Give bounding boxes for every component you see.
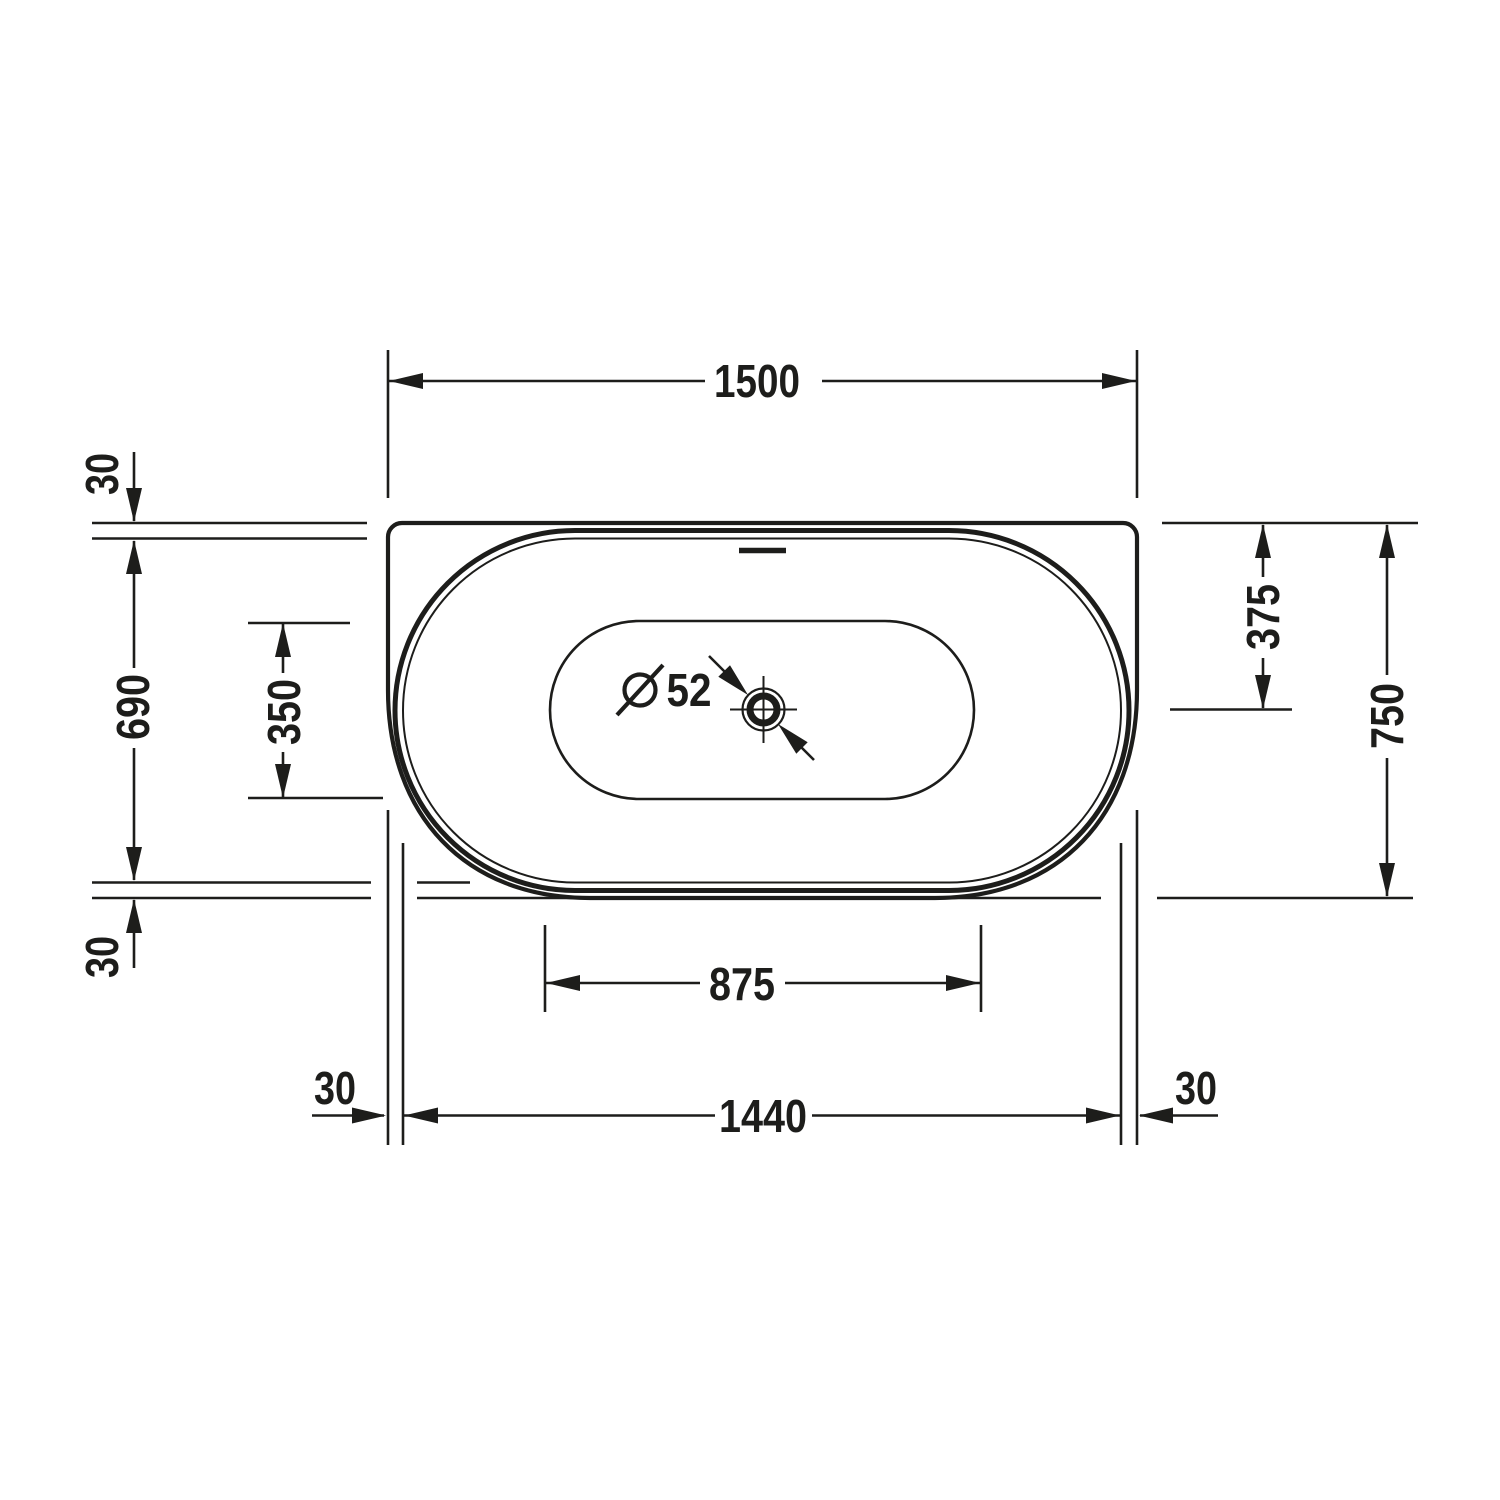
dimension-back-to-center: 375 [1237, 524, 1289, 709]
arrowhead-right [1102, 373, 1136, 389]
arrowhead-left [1139, 1108, 1173, 1124]
dimension-rim-offset-left-bottom: 30 [312, 1062, 386, 1124]
bathtub-technical-drawing: 52 1500 30 [0, 0, 1500, 1500]
drain-diameter-label: 52 [667, 664, 712, 716]
arrowhead-right [352, 1108, 386, 1124]
arrowhead-down [1255, 675, 1271, 709]
dimension-inner-depth: 690 [107, 540, 159, 881]
dim-label-inner-depth: 690 [107, 674, 159, 740]
arrowhead-right [946, 975, 980, 991]
dim-label-back-to-center: 375 [1237, 584, 1289, 650]
dim-label-inner-width: 1440 [719, 1090, 807, 1142]
dimension-overall-width: 1500 [389, 355, 1136, 407]
arrowhead-up [275, 623, 291, 657]
dim-label-overall-depth: 750 [1361, 683, 1413, 749]
arrowhead-left [546, 975, 580, 991]
arrowhead-up [1255, 524, 1271, 558]
drain-leader-upper [709, 656, 726, 673]
dimension-rim-offset-bottom: 30 [76, 899, 142, 978]
extension-lines [92, 350, 1418, 1145]
dimension-floor-depth: 350 [258, 623, 310, 798]
arrowhead-down [126, 488, 142, 522]
dim-label-floor-depth: 350 [258, 679, 310, 745]
bathtub-plan-view: 52 [388, 523, 1137, 898]
dimension-rim-offset-top: 30 [76, 452, 142, 522]
arrowhead-up [126, 540, 142, 574]
dim-label-overall-width: 1500 [714, 355, 800, 407]
drain-leader-lower [800, 746, 814, 760]
dimension-overall-depth: 750 [1361, 524, 1413, 897]
diameter-symbol-icon [617, 665, 663, 715]
arrowhead-left [389, 373, 423, 389]
arrowhead-down [275, 764, 291, 798]
arrowhead-up [1379, 524, 1395, 558]
drain: 52 [617, 656, 814, 760]
arrowhead-down [1379, 863, 1395, 897]
dim-label-rim-offset-bottom: 30 [76, 936, 128, 978]
dim-label-rim-offset-top: 30 [76, 453, 128, 495]
arrowhead-left [404, 1108, 438, 1124]
dim-label-rim-offset-right-bottom: 30 [1175, 1062, 1217, 1114]
dimension-rim-offset-right-bottom: 30 [1139, 1062, 1218, 1124]
arrowhead-down [126, 847, 142, 881]
drawing-page: 52 1500 30 [0, 0, 1500, 1500]
arrowhead-up [126, 899, 142, 933]
dimension-floor-width: 875 [546, 958, 980, 1010]
dim-label-floor-width: 875 [709, 958, 775, 1010]
arrowhead-right [1086, 1108, 1120, 1124]
dimension-inner-width: 1440 [404, 1090, 1120, 1142]
dim-label-rim-offset-left-bottom: 30 [314, 1062, 356, 1114]
